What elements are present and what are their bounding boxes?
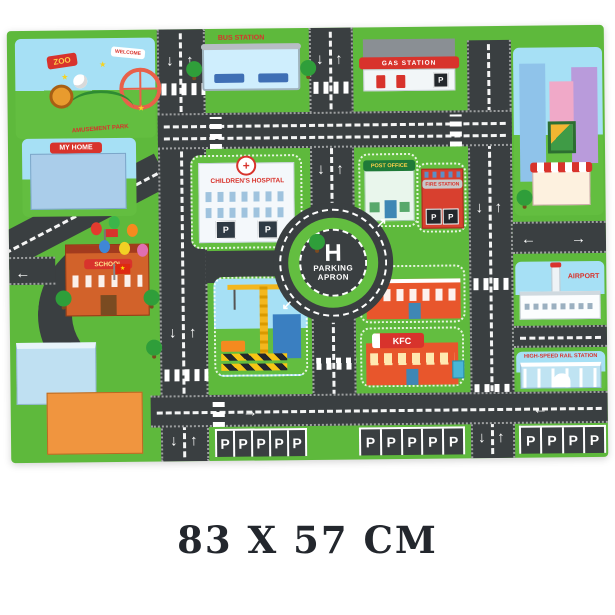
fire-station-windows <box>424 171 460 177</box>
zone-bus-station: BUS STATION <box>200 34 303 95</box>
balloon-icon <box>119 242 130 255</box>
tree <box>300 60 316 76</box>
zoo-sign: ZOO <box>46 52 78 69</box>
bus-bench <box>214 74 244 83</box>
fire-station-label: FIRE STATION <box>425 181 459 187</box>
up-arrow-icon: ↑ <box>336 162 344 177</box>
parking-slot: P <box>269 430 287 456</box>
roundabout: H PARKING APRON ↗ ↙ <box>273 202 394 323</box>
post-office-window <box>370 202 380 212</box>
mall-awning-shop <box>532 165 590 206</box>
zone-fire-station: FIRE STATION P P <box>416 162 467 233</box>
dump-truck-icon <box>221 341 245 352</box>
parking-mark: P <box>258 220 278 238</box>
parking-row: PPPPP <box>359 426 465 455</box>
soccer-ball-icon <box>73 74 87 88</box>
school-door <box>101 295 117 315</box>
down-arrow-icon: ↓ <box>317 162 325 177</box>
china-flag-icon: ★ <box>115 264 130 274</box>
parking-row: PPPPP <box>215 428 307 457</box>
parking-slot: P <box>287 430 305 456</box>
parking-slot: P <box>217 431 233 457</box>
left-arrow-icon: ← <box>521 232 536 247</box>
balloon-icon <box>127 224 138 237</box>
mcdonalds-door <box>409 303 421 319</box>
roller-coaster-icon <box>67 90 133 128</box>
construction-barrier <box>221 363 287 371</box>
construction-building <box>273 314 301 358</box>
hospital-label: CHILDREN'S HOSPITAL <box>201 177 293 185</box>
parking-slot: P <box>442 428 463 454</box>
parking-slot: P <box>233 431 251 457</box>
lane-marking <box>179 33 186 457</box>
mall-billboard <box>548 121 576 153</box>
my-home-building <box>30 153 127 210</box>
airport-terminal <box>520 291 601 320</box>
terminal-windows <box>525 303 596 310</box>
airport-label: AIRPORT <box>568 273 600 280</box>
gas-station-canopy: P <box>363 68 455 91</box>
parking-slot: P <box>361 429 380 455</box>
zone-rail-station: HIGH-SPEED RAIL STATION <box>516 351 605 392</box>
down-arrow-icon: ↓ <box>478 430 486 445</box>
hospital-windows <box>206 207 288 218</box>
parking-row: PPPP <box>519 425 606 454</box>
kfc-windows <box>370 352 454 365</box>
post-office-label: POST OFFICE <box>371 162 408 168</box>
bus-station-label: BUS STATION <box>218 34 264 41</box>
parking-mark: P <box>216 221 236 239</box>
down-arrow-icon: ↓ <box>316 52 324 67</box>
construction-barrier <box>221 353 287 361</box>
flagpole: ★ <box>113 264 115 280</box>
right-arrow-icon: → <box>243 405 258 420</box>
up-arrow-icon: ↑ <box>190 433 198 448</box>
bus-shelter-roof <box>201 43 301 50</box>
parking-slot: P <box>540 427 562 453</box>
zone-kfc: KFC <box>360 326 465 387</box>
upper-horizontal-road <box>158 110 512 150</box>
zone-gas-station: GAS STATION P <box>357 38 462 97</box>
zone-my-home: MY HOME <box>22 138 137 217</box>
post-office-window <box>400 202 410 212</box>
right-lower-horizontal-road <box>514 325 607 348</box>
star-icon: ★ <box>138 104 145 113</box>
down-arrow-icon: ↓ <box>476 200 484 215</box>
balloon-icon <box>91 222 102 235</box>
down-arrow-icon: ↓ <box>166 53 174 68</box>
tree <box>186 61 202 77</box>
rail-station-entrance <box>553 373 570 387</box>
bottom-horizontal-road: → ← <box>151 391 608 428</box>
crosswalk <box>210 117 222 149</box>
parking-slot: P <box>421 429 442 455</box>
parking-mark: P <box>443 208 459 224</box>
post-office-sign: POST OFFICE <box>363 160 415 172</box>
crosswalk <box>473 278 513 290</box>
up-arrow-icon: ↑ <box>335 52 343 67</box>
kfc-door <box>406 369 418 385</box>
gas-station-label: GAS STATION <box>382 59 437 67</box>
lane-marking <box>520 336 601 340</box>
turn-arrow-icon: ↗ <box>376 216 387 229</box>
gas-station-sign: GAS STATION <box>359 56 459 69</box>
play-mat: ← ↓ ↑ ↓ ↑ ↓ ↑ ↓ ↑ ↓ ↑ ↓ ↑ <box>7 25 608 463</box>
parking-mark: P <box>426 209 442 225</box>
bus-bench <box>258 73 288 82</box>
star-icon: ★ <box>99 60 106 69</box>
tree <box>516 190 532 206</box>
lion-icon <box>49 84 73 108</box>
tree <box>55 290 71 306</box>
star-icon: ★ <box>61 72 68 81</box>
post-office-building: POST OFFICE <box>364 161 415 222</box>
hospital-cross-icon: + <box>236 156 256 176</box>
hospital-windows <box>205 191 287 202</box>
left-arrow-icon: ← <box>15 266 30 281</box>
parking-slot: P <box>521 428 541 454</box>
tree <box>146 340 162 356</box>
right-upper-horizontal-road: ← → <box>513 221 606 254</box>
parking-slot: P <box>401 429 422 455</box>
welcome-label: WELCOME <box>115 49 142 57</box>
balloon-icon <box>99 240 110 253</box>
my-home-sign: MY HOME <box>50 142 102 154</box>
parking-slot: P <box>380 429 401 455</box>
zone-zoo-park: ZOO WELCOME AMUSEMENT PARK ★ ★ ★ <box>15 38 156 139</box>
my-home-label: MY HOME <box>59 144 92 151</box>
rail-station-label: HIGH-SPEED RAIL STATION <box>518 353 603 360</box>
right-arrow-icon: → <box>571 231 586 246</box>
kfc-sign: KFC <box>372 333 424 349</box>
zone-mall <box>513 47 604 216</box>
fire-station-sign: FIRE STATION <box>422 179 462 188</box>
up-arrow-icon: ↑ <box>189 325 197 340</box>
phone-booth <box>452 360 464 378</box>
fire-station-building: FIRE STATION P P <box>421 168 464 228</box>
left-arrow-icon: ← <box>533 401 548 416</box>
parking-slot: P <box>583 427 605 453</box>
size-caption: 83 X 57 CM <box>0 518 615 562</box>
balloon-icon <box>137 244 148 257</box>
fuel-pump <box>396 75 405 88</box>
bus-shelter <box>202 44 300 91</box>
left-stub-road: ← <box>9 257 55 285</box>
welcome-banner: WELCOME <box>111 46 146 59</box>
crosswalk <box>213 399 225 427</box>
apartment-building <box>47 392 144 455</box>
up-arrow-icon: ↑ <box>497 430 505 445</box>
fuel-pump <box>376 75 385 88</box>
zone-balloons: ★ <box>83 216 160 295</box>
hospital-building: + CHILDREN'S HOSPITAL P P <box>198 162 295 243</box>
crosswalk <box>316 357 356 369</box>
down-arrow-icon: ↓ <box>169 325 177 340</box>
kfc-building: KFC <box>366 342 458 385</box>
tree <box>309 234 325 250</box>
up-arrow-icon: ↑ <box>495 200 503 215</box>
crosswalk <box>161 83 205 95</box>
rail-station-building <box>520 362 601 389</box>
balloon-icon <box>109 216 120 229</box>
down-arrow-icon: ↓ <box>170 433 178 448</box>
parking-mark: P <box>433 73 448 88</box>
helipad-letter: H <box>324 243 342 265</box>
shop-awning <box>530 162 592 173</box>
parking-slot: P <box>251 430 269 456</box>
parking-slot: P <box>561 427 583 453</box>
kfc-label: KFC <box>393 335 412 345</box>
turn-arrow-icon: ↙ <box>282 298 293 311</box>
product-photo: ← ↓ ↑ ↓ ↑ ↓ ↑ ↓ ↑ ↓ ↑ ↓ ↑ <box>0 0 615 615</box>
crane-mast-icon <box>259 284 268 358</box>
zone-airport: AIRPORT <box>515 261 605 326</box>
amusement-park-label: AMUSEMENT PARK <box>72 124 129 135</box>
crane-cable <box>233 290 235 310</box>
parking-apron-label-2: APRON <box>318 273 349 282</box>
zoo-label: ZOO <box>53 55 71 66</box>
crosswalk <box>164 369 208 381</box>
control-tower-icon <box>551 265 560 293</box>
crosswalk <box>313 82 353 94</box>
crosswalk <box>450 114 462 146</box>
